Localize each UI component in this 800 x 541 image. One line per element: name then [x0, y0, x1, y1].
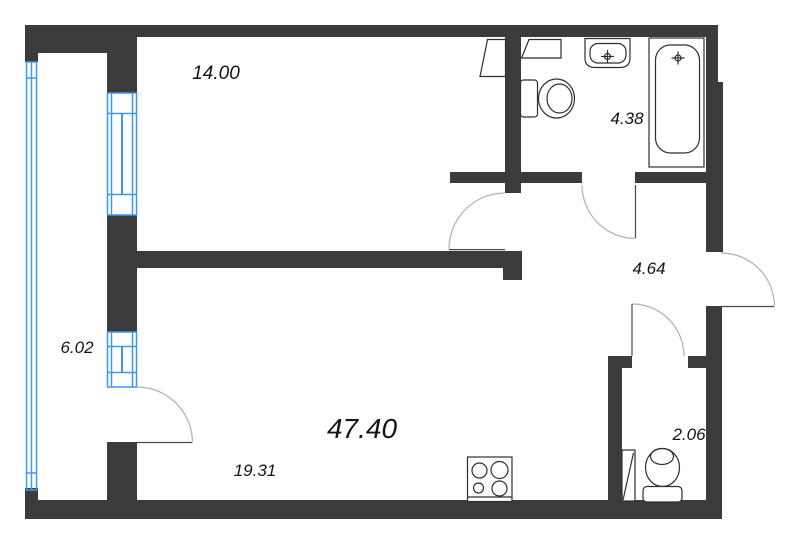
sink [585, 39, 630, 68]
wall-bedroom-bottom [128, 251, 522, 268]
wall-left-top-stub [25, 25, 38, 62]
stove [468, 457, 513, 502]
wc-panel [622, 450, 635, 501]
bathtub [649, 38, 704, 167]
wall-balcony-divider-lower [107, 442, 137, 502]
label-balcony-area: 6.02 [60, 338, 94, 357]
floor-plan: 14.00 4.38 4.64 6.02 47.40 19.31 2.06 [0, 0, 800, 541]
wall-right-mid [706, 82, 723, 252]
floor-plan-canvas: 14.00 4.38 4.64 6.02 47.40 19.31 2.06 [0, 0, 800, 541]
toilet-tank [521, 80, 538, 117]
wall-wc-left [608, 356, 622, 502]
label-total-area: 47.40 [327, 413, 397, 444]
wall-niche-stub [450, 172, 507, 183]
label-bathroom-area: 4.38 [610, 109, 644, 128]
wardrobe-bathroom [522, 40, 562, 59]
toilet-wc [643, 449, 682, 503]
wall-right-lower [706, 306, 722, 519]
label-hallway-area: 4.64 [632, 259, 665, 278]
wall-balcony-divider-upper [107, 37, 137, 93]
label-kitchen-area: 19.31 [234, 461, 277, 480]
wall-bottom [25, 500, 722, 519]
wall-balcony-divider-mid [107, 215, 137, 332]
label-wc-area: 2.06 [671, 425, 706, 444]
wall-wc-top-right [688, 356, 706, 368]
wall-top [125, 25, 718, 37]
label-bedroom-area: 14.00 [192, 63, 240, 84]
toilet-tank [643, 487, 682, 503]
wall-bathroom-bottom-left [519, 172, 582, 183]
toilet-bathroom [521, 79, 575, 118]
wall-bedroom-bottom-stub [503, 251, 522, 280]
wall-bathroom-bottom-right [635, 172, 706, 183]
wall-bathroom-left [505, 37, 521, 193]
wall-right-upper [706, 25, 718, 85]
